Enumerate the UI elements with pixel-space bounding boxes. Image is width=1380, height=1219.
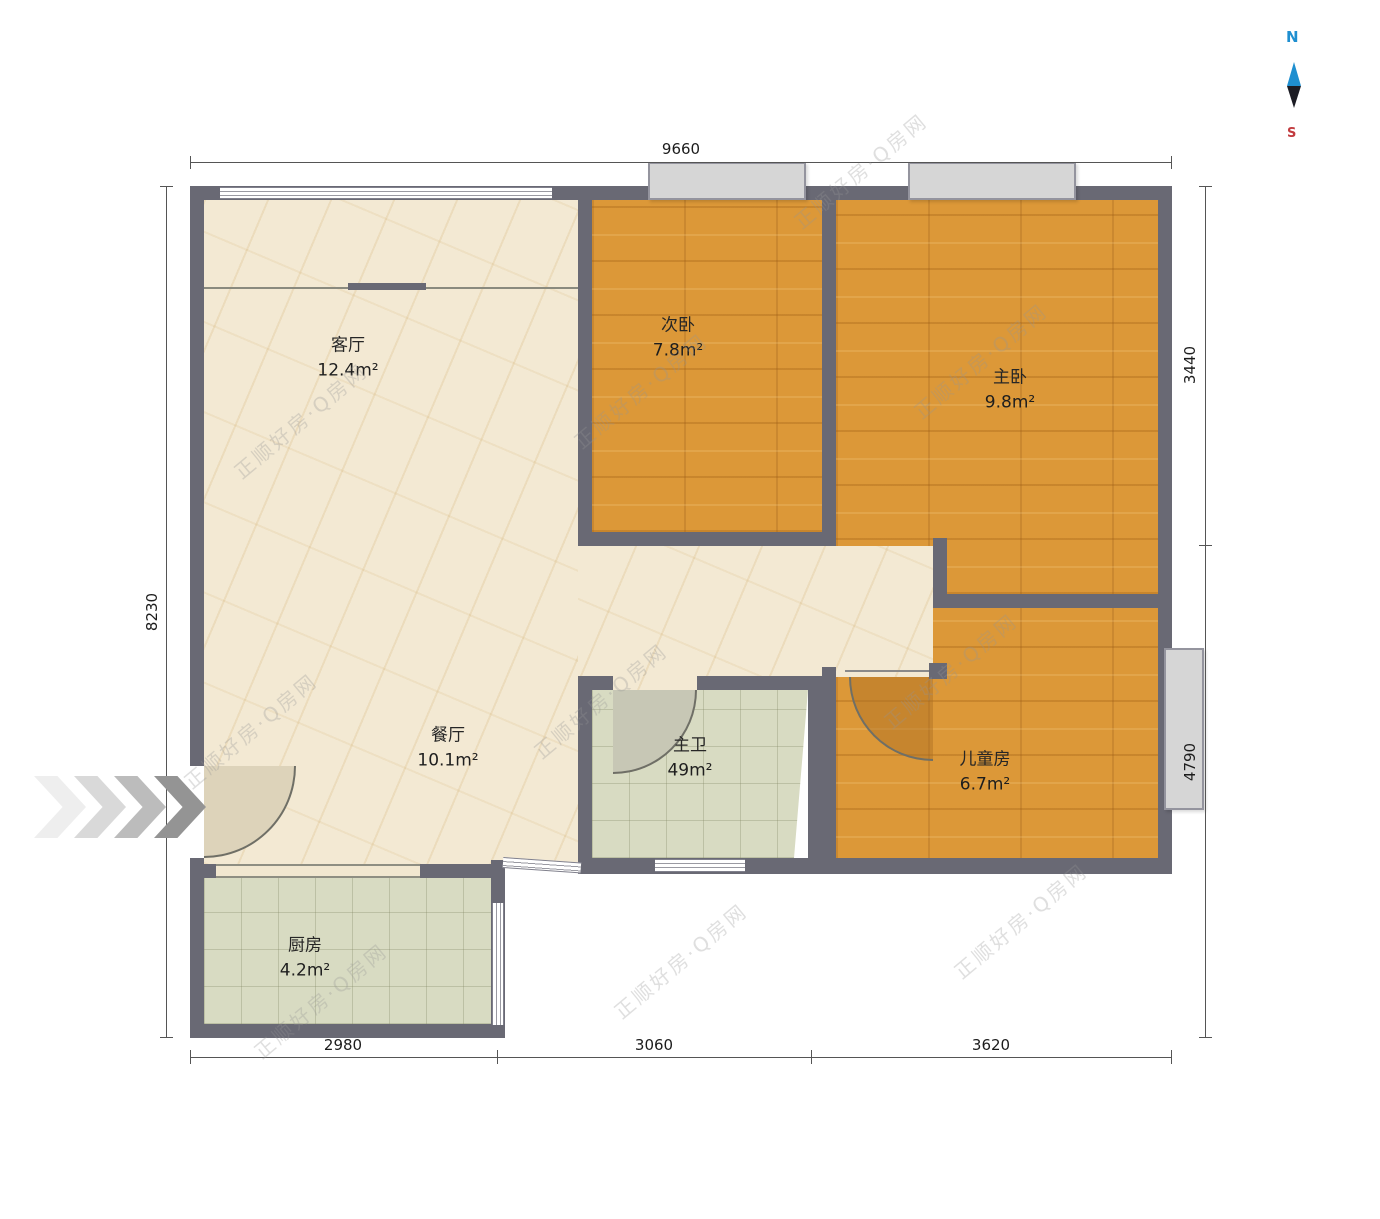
living-room-window <box>220 187 552 199</box>
dim-tick <box>160 1037 173 1038</box>
dining-room-name: 餐厅 <box>431 725 465 745</box>
wall-second-bedroom-left <box>578 200 592 546</box>
wall-kitchen-top-left-stub <box>190 864 216 878</box>
dining-room-area: 10.1m² <box>417 748 478 773</box>
master-bedroom-label: 主卧 9.8m² <box>985 365 1035 414</box>
kitchen-area: 4.2m² <box>280 958 330 983</box>
wall-bathroom-top-left <box>578 676 613 690</box>
dim-line-right <box>1205 186 1206 1038</box>
kitchen-label: 厨房 4.2m² <box>280 933 330 982</box>
wall-bathroom-left <box>578 676 592 872</box>
watermark-text: 正顺好房·Q房网 <box>947 856 1093 985</box>
bathroom-window <box>655 859 745 872</box>
dim-right-upper-value: 3440 <box>1181 346 1199 384</box>
compass-south-arrow <box>1287 86 1301 108</box>
wall-left-upper <box>190 186 204 766</box>
dim-top-value: 9660 <box>662 140 700 158</box>
floor-plan-canvas: 客厅 12.4m² 次卧 7.8m² 主卧 9.8m² 餐厅 10.1m² 主卫… <box>0 0 1380 1219</box>
living-room-floor <box>204 200 578 864</box>
dim-tick <box>1199 1037 1212 1038</box>
kids-room-area: 6.7m² <box>960 772 1011 797</box>
dim-tick <box>1199 186 1212 187</box>
second-bedroom-area: 7.8m² <box>653 338 703 363</box>
dim-tick <box>811 1050 812 1064</box>
kitchen-opening-threshold <box>214 864 420 878</box>
kitchen-side-window <box>492 903 504 1025</box>
bathroom-name: 主卫 <box>673 735 707 755</box>
kids-room-door-threshold <box>845 670 933 672</box>
watermark-text: 正顺好房·Q房网 <box>607 896 753 1025</box>
dim-line-top <box>190 162 1172 163</box>
kids-room-name: 儿童房 <box>960 749 1011 769</box>
second-bedroom-name: 次卧 <box>661 315 695 335</box>
kitchen-name: 厨房 <box>288 935 322 955</box>
wall-master-bedroom-bottom <box>933 594 1172 608</box>
master-bedroom-bay-window <box>908 162 1076 200</box>
dim-tick <box>1199 545 1212 546</box>
living-room-area: 12.4m² <box>317 358 378 383</box>
kids-room-side-window <box>1164 648 1204 810</box>
compass-south-label: S <box>1287 126 1296 141</box>
second-bedroom-floor <box>592 200 822 532</box>
dim-bottom-right-value: 3620 <box>972 1036 1010 1054</box>
dim-tick <box>1171 156 1172 169</box>
bathroom-label: 主卫 49m² <box>667 733 712 782</box>
dining-room-label: 餐厅 10.1m² <box>417 723 478 772</box>
wall-bedroom-divider <box>822 200 836 546</box>
living-room-label: 客厅 12.4m² <box>317 333 378 382</box>
dim-bottom-left-value: 2980 <box>324 1036 362 1054</box>
wall-left-lower <box>190 858 204 1038</box>
living-room-name: 客厅 <box>331 335 365 355</box>
compass-north-label: N <box>1286 28 1299 46</box>
dim-left-value: 8230 <box>143 593 161 631</box>
second-bedroom-bay-window <box>648 162 806 200</box>
hallway-floor <box>578 532 933 690</box>
dim-right-lower-value: 4790 <box>1181 743 1199 781</box>
wall-kids-door-stub <box>929 663 947 679</box>
balcony-slider-panel <box>348 283 426 290</box>
dim-tick <box>497 1050 498 1064</box>
dim-tick <box>160 186 173 187</box>
compass-north-arrow <box>1287 62 1301 86</box>
dim-bottom-center-value: 3060 <box>635 1036 673 1054</box>
kitchen-floor <box>204 878 491 1024</box>
master-bedroom-area: 9.8m² <box>985 390 1035 415</box>
bathroom-area: 49m² <box>667 758 712 783</box>
wall-bathroom-top-right <box>697 676 822 690</box>
second-bedroom-label: 次卧 7.8m² <box>653 313 703 362</box>
dim-tick <box>190 156 191 169</box>
dim-tick <box>190 1050 191 1064</box>
wall-kitchen-top-right <box>420 864 505 878</box>
dim-line-bottom <box>190 1057 1172 1058</box>
wall-second-bedroom-bottom <box>578 532 836 546</box>
wall-kids-room-left <box>822 667 836 874</box>
master-bedroom-name: 主卧 <box>993 367 1027 387</box>
kids-room-label: 儿童房 6.7m² <box>960 747 1011 796</box>
dim-line-left <box>166 186 167 1038</box>
entrance-arrow-icon <box>34 776 86 838</box>
dim-tick <box>1171 1050 1172 1064</box>
wall-bathroom-right <box>808 676 822 872</box>
